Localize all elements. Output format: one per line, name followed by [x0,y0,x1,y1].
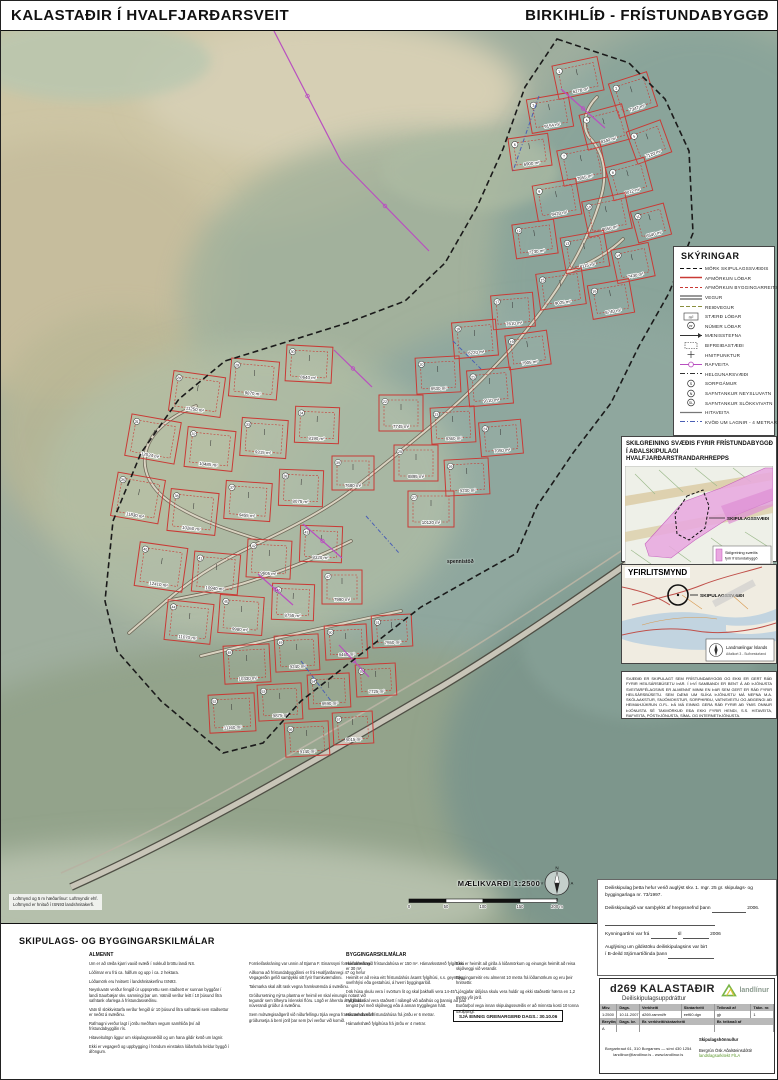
office-address: Borgarbraut 61, 310 Borgarnes — sími 430… [605,1046,692,1058]
plot: 9980 m²45 [218,595,265,636]
page-title-left: KALASTAÐIR Í HVALFJARÐARSVEIT [11,7,289,24]
inset-overview-credit: Landmælingar Íslands Aðalkort 3 - Suðves… [706,639,774,661]
terms-paragraph: Hámarksstærð frístundahúsa er 150 m². Há… [346,961,466,972]
svg-text:8320 m²: 8320 m² [312,555,329,561]
svg-text:13: 13 [565,242,570,247]
svg-text:41: 41 [198,556,202,560]
legend-item: KVÖÐ UM LAGNIR - 4 METRAR [679,418,771,428]
legend-item-label: SORPGÁMUR [705,381,737,386]
logo-mountain-icon [721,983,737,997]
inset-overview-map: SKIPULAGSSVÆÐI Landmælingar Íslands Aðal… [622,565,776,663]
svg-text:49: 49 [278,641,282,645]
svg-text:8755 m²: 8755 m² [284,613,301,619]
svg-text:Aðalkort 3 - Suðvesturland: Aðalkort 3 - Suðvesturland [726,651,766,656]
svg-text:fyrir frístundabyggð: fyrir frístundabyggð [725,555,758,560]
legend-item-label: SAFNTANKUR NEYSLUVATN [705,391,771,396]
plot: 10260 m²36 [167,489,219,536]
svg-text:56: 56 [288,728,292,732]
svg-text:12: 12 [516,229,521,234]
plot: 9605 m²42 [246,539,292,579]
terms-paragraph: Hámarkshæð frístundahúsa frá jörðu er 6 … [346,1012,466,1017]
svg-text:9605 m²: 9605 m² [260,571,277,577]
inset-landuse-area-label: SKIPULAGSSVÆÐI [727,516,769,521]
terms-paragraph: Hámarkshæð fylgihúsa frá jörðu er 4 metr… [346,1021,466,1026]
svg-text:9140 m²: 9140 m² [299,749,316,755]
terms-column-1: ALMENNT Um er að ræða kjarri vaxið svæði… [89,952,229,1058]
svg-text:37: 37 [230,486,234,490]
svg-text:39: 39 [336,461,340,465]
svg-text:N: N [555,866,558,871]
svg-text:25: 25 [398,450,402,454]
plot: 9315 m²33 [240,417,289,458]
titleblock-value-row: 1:250010.11.2007d269-rammi/freef60.dgngþ… [600,1011,774,1018]
notice-text: SVÆÐIÐ ER SKIPULAGT SEM FRÍSTUNDABYGGÐ O… [626,676,772,718]
plot: 8015 m²57 [332,711,374,745]
map-caption: Loftmynd og 5 m hæðarlínur: Loftmyndir e… [9,894,102,910]
plot: 9230 m²26 [444,458,490,496]
svg-text:57: 57 [336,718,340,722]
svg-text:31: 31 [134,419,139,424]
map-road-label: spennistöð [447,559,474,565]
terms-column-3: BYGGINGARSKILMÁLAR Hámarksstærð frístund… [346,952,466,1030]
svg-text:43: 43 [304,530,308,534]
scale-label-wrap: MÆLIKVARÐI 1:2500 [399,879,599,913]
svg-text:22: 22 [383,400,387,404]
map-caption-line2: Loftmynd er hnituð í ISN93 landshnitaker… [13,902,98,908]
designer-label: Skipulagshönnuður [699,1037,769,1042]
terms-paragraph: Fylgihús skal vera staðsett í nálægð við… [346,998,466,1009]
svg-text:18: 18 [456,327,460,331]
drawing-subtitle: Deiliskipulagsuppdráttur [622,996,715,1002]
legend-item-label: MÆNISSTEFNA [705,333,741,338]
plot: 9110 m²21 [467,367,514,407]
svg-text:38: 38 [283,474,287,478]
inset-overview-panel: YFIRLITSMYND SKIPULAGSSVÆÐI [621,564,777,664]
plot: 10120 m²27 [408,491,454,527]
plot: 7610 m²17 [491,292,536,330]
title-block-table: Mkv.Dags.VerkheitiSkráarheitiTeiknað afT… [600,1004,774,1032]
svg-text:29: 29 [235,363,239,367]
svg-text:14: 14 [616,253,621,258]
plot: 8360 m²23 [430,406,476,444]
legend-item-label: RAFVEITA [705,362,729,367]
svg-text:15: 15 [540,278,545,283]
svg-text:47: 47 [326,575,330,579]
legend-item-label: MÖRK SKIPULAGSSVÆÐIS [705,266,768,271]
terms-paragraph: Vatn til slökkvistarfa verður fengið úr … [89,1007,229,1018]
plot: 8895 m²25 [394,445,438,481]
terms-paragraph: Rafmagni verður lagt í jörðu meðfram veg… [89,1021,229,1032]
svg-text:10120 m²: 10120 m² [422,520,441,525]
terms-column-4: Ekki er heimilt að girða á lóðamörkum og… [456,952,586,1018]
plot: 9154 m²3 [526,93,573,134]
terms-col3-heading: BYGGINGARSKILMÁLAR [346,952,466,958]
titleblock-header-row: BreytingDags. br.Br. verkheiti/skráarhei… [600,1018,774,1025]
svg-text:8015 m²: 8015 m² [345,737,362,743]
svg-text:8075 m²: 8075 m² [292,499,309,505]
plot: 9025 m²15 [536,268,587,310]
svg-text:11160 m²: 11160 m² [224,724,243,730]
legend-item-label: AFMÖRKUN LÓÐAR [705,276,751,281]
svg-text:7725 m²: 7725 m² [368,689,385,695]
plot: 8530 m²20 [415,356,461,394]
drawing-title: d269 KALASTAÐIR [610,983,715,995]
svg-text:Skilgreining svæðis: Skilgreining svæðis [725,550,758,555]
plot: 7745 m²22 [379,395,423,431]
titleblock-header-row: Mkv.Dags.VerkheitiSkráarheitiTeiknað afT… [600,1004,774,1011]
titleblock-value-row: A [600,1025,774,1032]
svg-text:19: 19 [509,340,514,345]
plot: 9140 m²56 [284,721,330,757]
approval-kynning: Kynningartími var frá til 2006 [605,932,769,939]
plot: 9455 m²37 [224,480,273,521]
svg-text:8590 m²: 8590 m² [321,701,338,707]
svg-text:8640 m²: 8640 m² [300,375,317,381]
terms-paragraph: Byggingarreitir eru almennt 10 metra frá… [456,975,586,986]
plot: 11070 m²44 [164,600,214,645]
terms-paragraph: Ljósgjafar útiljósa skulu vera huldir og… [456,989,586,1000]
svg-text:8460 m²: 8460 m² [338,652,355,658]
svg-text:33: 33 [246,423,250,427]
logo-text: landlínur [739,987,769,994]
approval-gildistaka: Auglýsing um gildistöku deiliskipulagsin… [605,945,769,959]
plot: 8755 m²46 [271,583,314,620]
terms-paragraph: Hitaveitulögn liggur um skipulagssvæðið … [89,1035,229,1040]
approval-samthykkt: Deiliskipulagið var samþykkt af hreppsne… [605,906,769,913]
legend-item-label: HNITPUNKTUR [705,353,740,358]
plot: 12024 m²31 [125,414,182,464]
svg-text:36: 36 [174,494,178,498]
plot: 8320 m²43 [299,525,342,562]
plot: 8640 m²30 [285,345,333,383]
terms-paragraph: Þök húsa skulu vera í svörtum lit og ska… [346,989,466,994]
approval-line1: Deiliskipulag þetta hefur verið auglýst … [605,886,769,900]
plot: 9870 m²29 [228,358,279,400]
terms-paragraph: Lóðirnar eru frá ca. hálfum og upp í ca.… [89,970,229,975]
terms-paragraph: Ekki er vegagerð og uppbygging í höndum … [89,1044,229,1055]
svg-text:8530 m²: 8530 m² [431,386,448,392]
svg-text:50: 50 [328,631,332,635]
terms-paragraph: Ekki er heimilt að girða á lóðamörkum og… [456,961,586,972]
inset-overview-title: YFIRLITSMYND [625,567,690,578]
plot: 8075 m²38 [278,469,323,507]
svg-text:7745 m²: 7745 m² [393,424,410,429]
svg-text:52: 52 [212,700,216,704]
terms-paragraph: Um er að ræða kjarri vaxið svæði í nokku… [89,961,229,966]
svg-text:53: 53 [261,690,265,694]
plot: 9420 m²9 [532,178,582,221]
legend-items: MÖRK SKIPULAGSSVÆÐISAFMÖRKUN LÓÐARAFMÖRK… [679,264,771,427]
pipes-symbol [679,417,703,426]
plot: 10940 m²41 [191,551,240,595]
plot: 7905 m²19 [505,330,551,370]
plot: 8115 m²13 [560,230,610,273]
legend-item-label: AFMÖRKUN BYGGINGARREITS [705,285,778,290]
svg-text:7990 m²: 7990 m² [334,597,351,602]
legend-item-label: NÚMER LÓÐAR [705,324,741,329]
legend-item-label: KVÖÐ UM LAGNIR - 4 METRAR [705,420,777,425]
svg-text:32: 32 [191,432,195,436]
inset-landuse-panel: SKILGREINING SVÆÐIS FYRIR FRÍSTUNDABYGGÐ… [621,436,777,562]
svg-text:34: 34 [299,411,303,415]
title-block: d269 KALASTAÐIR Deiliskipulagsuppdráttur… [599,978,775,1074]
svg-text:10: 10 [587,205,592,210]
notice-panel: SVÆÐIÐ ER SKIPULAGT SEM FRÍSTUNDABYGGÐ O… [621,671,777,719]
legend-item-label: REIÐVEGUR [705,305,734,310]
terms-paragraph: Heimilt er að reisa eitt frístundahús ás… [346,975,466,986]
svg-text:26: 26 [448,465,452,469]
svg-text:51: 51 [375,621,379,625]
signature-blank[interactable] [712,907,746,913]
svg-text:28: 28 [177,376,182,381]
plot: 8220 m²18 [452,319,499,359]
svg-text:16: 16 [592,289,597,294]
svg-text:8360 m²: 8360 m² [446,436,463,442]
svg-text:17: 17 [495,300,499,304]
terms-heading: SKIPULAGS- OG BYGGINGARSKILMÁLAR [19,936,215,946]
legend-item-label: HITAVEITA [705,410,730,415]
svg-text:54: 54 [311,680,315,684]
plot: 7990 m²47 [322,570,362,604]
plot: 9875 m²53 [257,683,303,721]
plot: 7230 m²12 [512,219,558,259]
plot: 9240 m²49 [274,634,320,672]
approval-signature-line[interactable] [605,919,769,926]
plot: 11250 m²28 [168,371,225,418]
legend-panel: SKÝRINGAR MÖRK SKIPULAGSSVÆÐISAFMÖRKUN L… [673,246,775,436]
legend-item-label: HELGUNARSVÆÐI [705,372,748,377]
svg-text:27: 27 [412,496,416,500]
plot: 7050 m²24 [479,419,524,457]
plot: 7430 m²14 [611,242,655,283]
plot: 10485 m²32 [184,427,236,472]
svg-text:9230 m²: 9230 m² [460,488,477,494]
terms-paragraph: Neysluvatn verður fengið úr uppsprettu s… [89,987,229,1003]
svg-text:48: 48 [227,651,231,655]
svg-text:23: 23 [434,413,438,417]
landlinur-logo: landlínur [721,983,769,997]
plot: 8190 m²34 [294,406,339,444]
svg-text:40: 40 [143,547,148,552]
svg-text:42: 42 [252,544,256,548]
svg-text:20: 20 [419,363,423,367]
legend-item-label: VEGUR [705,295,722,300]
plot: 7680 m²39 [332,456,374,490]
svg-text:30: 30 [291,350,295,354]
plot: 12410 m²40 [134,542,188,592]
svg-text:21: 21 [471,375,475,379]
svg-text:9240 m²: 9240 m² [290,664,307,670]
inset-landuse-title: SKILGREINING SVÆÐIS FYRIR FRÍSTUNDABYGGÐ… [626,441,773,464]
legend-item-label: BIFREIÐASTÆÐI [705,343,744,348]
designer-title: landslagsarkitekt FÍLA [699,1053,769,1058]
legend-item-label: SAFNTANKUR SLÖKKVIVATN [705,401,773,406]
svg-text:8895 m²: 8895 m² [408,474,425,479]
sheet-header: KALASTAÐIR Í HVALFJARÐARSVEIT BIRKIHLÍÐ … [1,1,778,31]
plan-sheet: KALASTAÐIR Í HVALFJARÐARSVEIT BIRKIHLÍÐ … [0,0,778,1080]
svg-text:8190 m²: 8190 m² [308,436,325,442]
approval-panel: Deiliskipulag þetta hefur verið auglýst … [597,879,777,976]
svg-text:44: 44 [171,605,175,609]
plot: 10330 m²48 [223,644,271,684]
page-title-right: BIRKIHLÍÐ - FRÍSTUNDABYGGÐ [525,7,769,24]
inset-landuse-map: SKIPULAGSSVÆÐI Skilgreining svæðis fyrir… [625,466,773,566]
inset-landuse-legend: Skilgreining svæðis fyrir frístundabyggð [713,546,771,564]
plot: 11160 m²52 [208,693,256,733]
svg-text:45: 45 [224,600,228,604]
legend-item-label: STÆRÐ LÓÐAR [705,314,741,319]
scale-label: MÆLIKVARÐI 1:2500 [399,879,599,888]
plot: 8740 m²16 [587,279,634,320]
terms-col1-heading: ALMENNT [89,952,229,958]
svg-text:7550 m²: 7550 m² [384,640,401,646]
svg-text:10330 m²: 10330 m² [238,675,257,681]
see-also-box: SJÁ EINNIG GREINARGERÐ DAGS.: 30.10.06 [453,1010,563,1022]
svg-text:7680 m²: 7680 m² [345,483,362,488]
svg-text:24: 24 [483,427,487,431]
terms-paragraph: Lóðamörk eru hnitsett í landshnitakerfin… [89,979,229,984]
svg-text:35: 35 [121,478,126,483]
svg-text:Landmælingar Íslands: Landmælingar Íslands [726,645,767,650]
designer-block: Skipulagshönnuður Bergrún Ósk Aðalsteins… [699,1037,769,1058]
plot: 11830 m²35 [111,472,166,524]
